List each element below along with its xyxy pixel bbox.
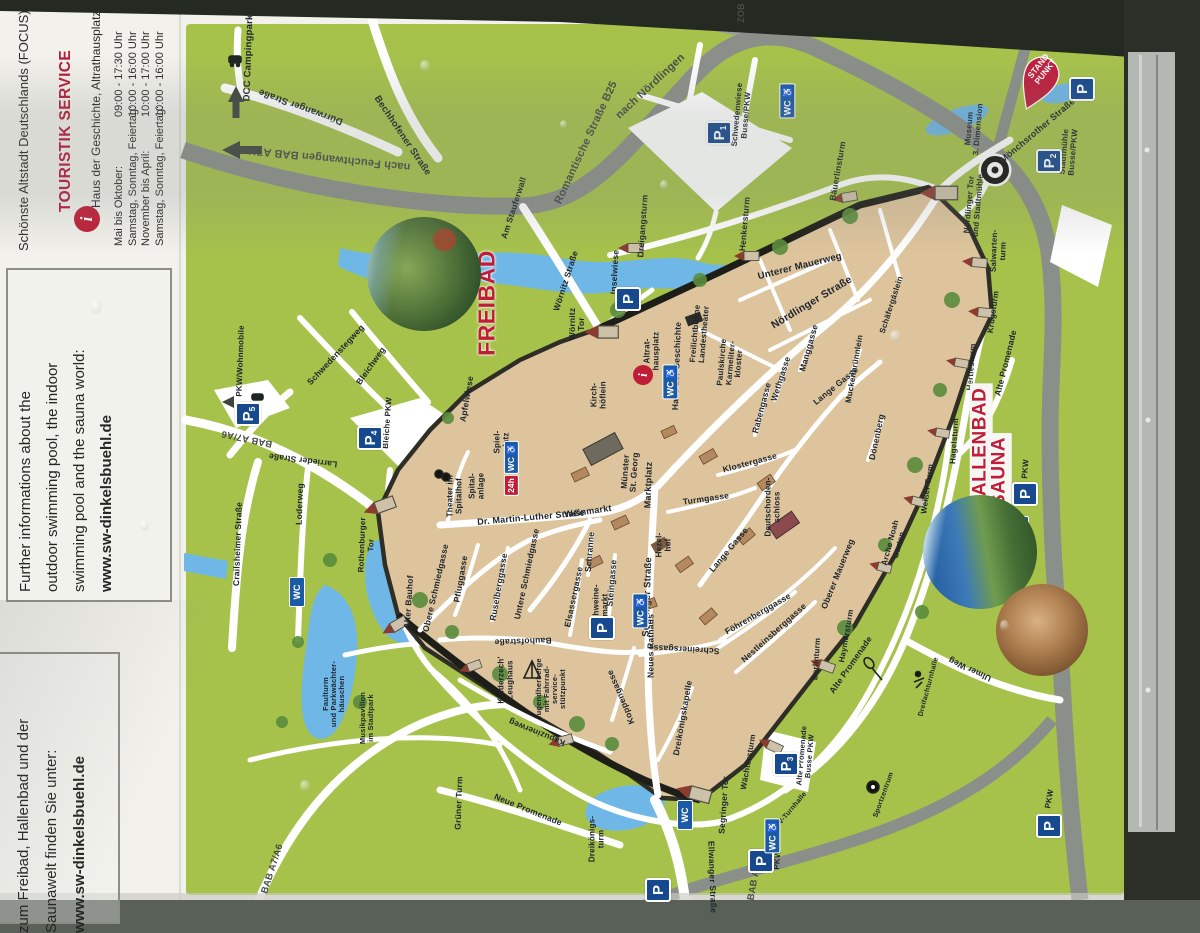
map-label: nach Feuchtwangen BAB A7/A6 bbox=[239, 142, 411, 172]
map-label: Münster St. Georg bbox=[619, 451, 640, 492]
parking-badge: P bbox=[1036, 814, 1062, 838]
map-label: Kirch- höflein bbox=[590, 381, 607, 409]
map-label: Bleichweg bbox=[355, 345, 388, 386]
map-label: Schäfergäslein bbox=[879, 275, 906, 334]
map-label: Dreifachturnhalle bbox=[917, 657, 940, 718]
map-label: Wörnitz Tor bbox=[568, 308, 586, 341]
map-label: Oberer Mauerweg bbox=[820, 538, 857, 611]
map-label: Klostergasse bbox=[722, 451, 778, 474]
map-label: Schwedenwiese Busse/PKW bbox=[731, 82, 754, 147]
map-label: Apfelwiese bbox=[458, 375, 475, 422]
map-label: Deutschorden- schloss bbox=[764, 477, 781, 536]
map-label: Hezel- hof bbox=[655, 533, 672, 558]
map-label: nach Nördlingen bbox=[614, 52, 688, 122]
map-label: Dreikönigskapelle bbox=[672, 680, 694, 757]
parking-badge-p1: P1 bbox=[706, 121, 732, 145]
wc-24h-badge: 24hWC ♿ bbox=[504, 441, 519, 496]
map-label: Larrieder Straße bbox=[268, 451, 337, 468]
wc-badge: WC ♿ bbox=[764, 819, 780, 854]
map-label: Unterer Mauerweg bbox=[757, 252, 843, 283]
map-label: Rothenburger Tor bbox=[357, 517, 376, 573]
map-label: Untere Schmiedgasse bbox=[513, 528, 541, 621]
wc-badge: WC ♿ bbox=[779, 84, 795, 119]
map-label: ZOB bbox=[737, 3, 747, 23]
map-label: Henkersturm bbox=[738, 196, 752, 251]
map-label: Neue Promenade bbox=[493, 792, 563, 828]
map-label: Manggasse bbox=[798, 324, 820, 373]
map-label: BAB A7/A6 bbox=[221, 428, 274, 449]
map-label: Wethgasse bbox=[769, 355, 792, 402]
map-label: Sportzentrum bbox=[872, 771, 895, 819]
map-label: Ellwanger Straße bbox=[706, 841, 718, 913]
map-label: Kapuzinerweg bbox=[507, 717, 566, 748]
wc-badge: WC bbox=[289, 577, 305, 607]
map-label: Bleiche PKW bbox=[382, 397, 394, 449]
map-label: Wörnitz Straße bbox=[552, 250, 580, 313]
map-label: Hagelsturm bbox=[949, 418, 961, 465]
map-label: Turmgasse bbox=[682, 491, 729, 507]
map-label: Bäuerlinsturm bbox=[828, 141, 847, 202]
map-label: Am Stauferwall bbox=[500, 176, 529, 240]
photo-circle-freibad bbox=[367, 217, 481, 331]
map-label: Kinderzech' Zeughaus bbox=[497, 656, 514, 703]
map-label: Rabengasse bbox=[751, 382, 773, 435]
map-label: Wächtersturm bbox=[740, 734, 758, 791]
map-label: Dürrwanger Straße bbox=[257, 86, 344, 126]
map-label: Faulturm und Parkwächter- häuschen bbox=[322, 661, 346, 727]
wc-badge: WC ♿ bbox=[632, 594, 648, 629]
map-label: Nördlinger Tor und Stadtmühle bbox=[963, 173, 986, 238]
map-label: Dönenberg bbox=[868, 413, 887, 461]
map-label: Berlinturm bbox=[811, 638, 823, 681]
map-label: Elsassergasse bbox=[563, 566, 585, 628]
map-label: Arche Noah Garten bbox=[881, 519, 910, 569]
map-label: Grüner Turm bbox=[453, 776, 464, 830]
parking-badge-p5: P5 bbox=[235, 402, 261, 426]
wc-badge: WC bbox=[677, 800, 693, 830]
parking-badge: P bbox=[615, 287, 641, 311]
map-label: Krugsturm bbox=[987, 290, 1001, 333]
map-label: Segringer Tor bbox=[717, 776, 730, 834]
parking-badge: P bbox=[589, 616, 615, 640]
parking-badge: P bbox=[1069, 77, 1095, 101]
map-label: Loderweg bbox=[295, 483, 306, 525]
map-labels: DCC CampingparkDürrwanger Straßenach Feu… bbox=[0, 0, 1200, 900]
parking-badge: P bbox=[1012, 482, 1038, 506]
map-label: BAB A7/A6 bbox=[260, 843, 286, 895]
map-label: Dreikönigs- turm bbox=[588, 816, 605, 862]
map-label: Romantische Straße B25 bbox=[553, 80, 620, 206]
map-label: Musikpavillon im Stadtpark bbox=[359, 692, 375, 744]
tourist-info-icon: i bbox=[633, 365, 653, 385]
map-label: Schreinersgasse bbox=[648, 643, 719, 656]
map-label: Museum 3. Dimension bbox=[963, 102, 985, 156]
map-label: DCC Campingpark bbox=[242, 14, 255, 101]
photo-of-map-sign: DINKELSBÜHL Schönste Altstadt Deutschlan… bbox=[0, 0, 1200, 900]
map-label: Salwarten- turm bbox=[990, 229, 1009, 272]
map-label: Spital- anlage bbox=[468, 473, 485, 500]
map-label: Jugendherberge mit Fahrrad- service- stü… bbox=[535, 658, 567, 720]
parking-badge-p4: P4 bbox=[357, 426, 383, 450]
map-label: Freilichtbühne Landestheater bbox=[689, 304, 711, 363]
map-label: Lange Gasse bbox=[708, 526, 750, 574]
map-label: Weißer Turm bbox=[920, 463, 936, 514]
map-label: Dr. Martin-Luther Straße bbox=[477, 508, 585, 527]
map-label: PKW bbox=[1044, 789, 1056, 809]
map-label: Alter Bauhof bbox=[403, 575, 416, 629]
map-label: PKW/Wohnmobile bbox=[235, 325, 246, 397]
map-label: Marktplatz bbox=[643, 462, 654, 509]
map-label: Dreigangsturm bbox=[636, 194, 650, 258]
map-label: Schranne bbox=[584, 532, 597, 573]
map-label: Ruselberggasse bbox=[489, 552, 510, 621]
map-label: Crailsheimer Straße bbox=[232, 502, 244, 586]
map-label: Obere Schmiedgasse bbox=[421, 543, 450, 633]
map-label: Bauhofstraße bbox=[494, 635, 551, 646]
parking-badge: P bbox=[645, 878, 671, 902]
map-label: Theater im Spitalhof bbox=[446, 475, 463, 517]
map-label: Alte Promenade bbox=[828, 635, 874, 696]
map-label: PKW bbox=[1021, 459, 1031, 479]
wc-badge: WC ♿ bbox=[662, 365, 678, 400]
map-label: Koppengasse bbox=[605, 669, 636, 726]
photo-circle-sauna bbox=[996, 584, 1088, 676]
map-label: Ulmer Weg bbox=[947, 655, 993, 683]
map-label: Alte Promenade bbox=[993, 329, 1018, 397]
parking-badge-p3: P3 bbox=[773, 752, 799, 776]
map-label: Pfluggasse bbox=[452, 555, 469, 603]
map-label: Paulskirche Karmeliter- kloster bbox=[716, 338, 746, 387]
parking-badge-p2: P2 bbox=[1036, 149, 1062, 173]
